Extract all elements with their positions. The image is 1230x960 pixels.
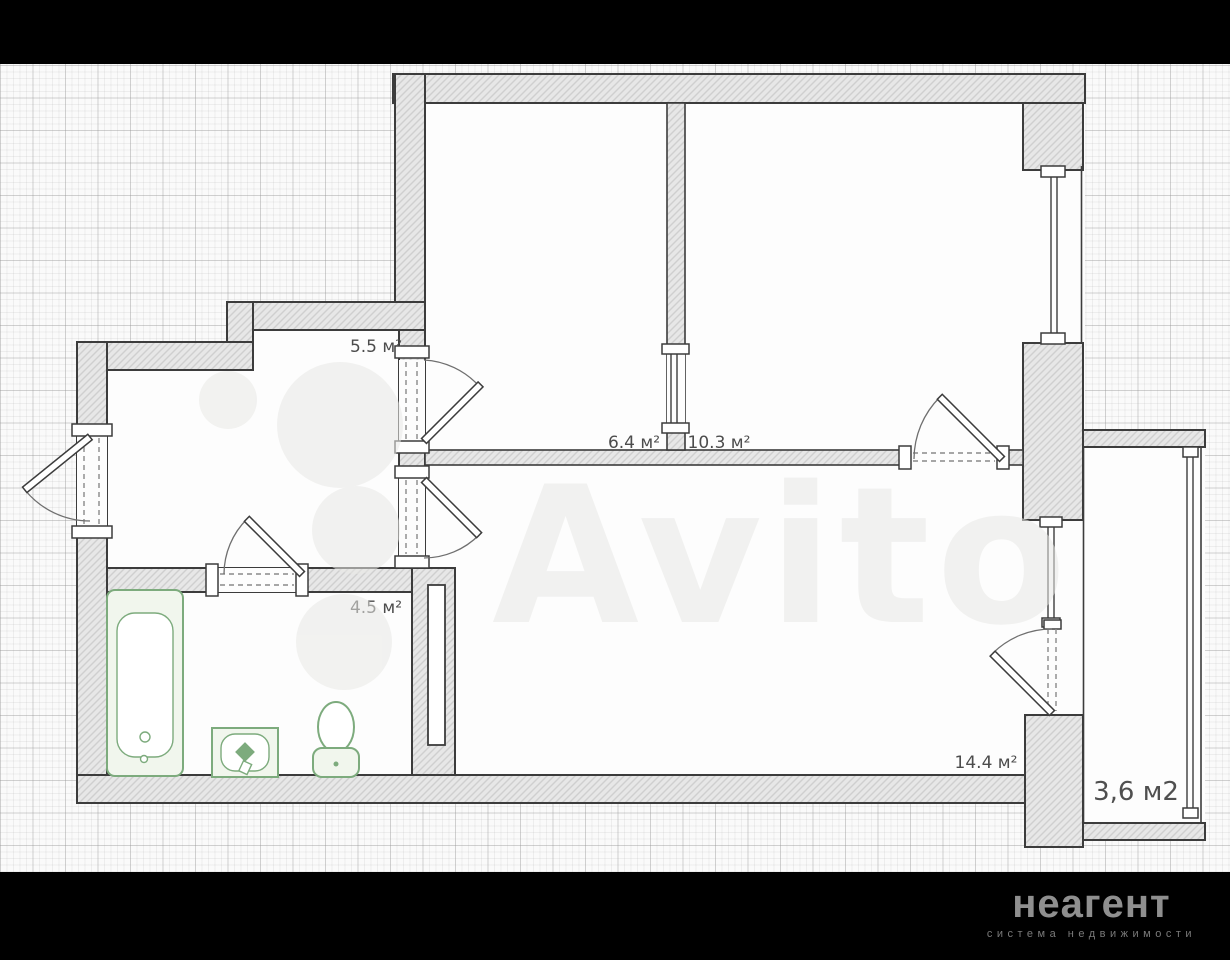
room-label-balcony: 3,6 м2: [1093, 777, 1179, 807]
watermark-dot: [199, 371, 257, 429]
toilet-button: [334, 762, 339, 767]
floor-plan-screenshot: 5.5 м² 6.4 м² 10.3 м² 4.5 м² 14.4 м² 3,6…: [0, 0, 1230, 960]
bathtub: [107, 590, 183, 776]
watermark-dot: [312, 486, 400, 574]
wall-hallway-top: [227, 302, 425, 330]
sink: [212, 728, 278, 777]
toilet: [313, 702, 359, 777]
door-jamb: [395, 466, 429, 478]
neagent-tagline: система недвижимости: [987, 928, 1196, 940]
door-jamb: [206, 564, 218, 596]
bathtub-drain: [140, 732, 150, 742]
window-cap: [662, 423, 689, 433]
watermark-text: Avito: [492, 446, 1073, 667]
ventilation-shaft-niche: [428, 585, 445, 745]
watermark-dot: [277, 362, 403, 488]
window-cap: [1183, 447, 1198, 457]
door-entrance: [23, 424, 112, 538]
room-label-living: 14.4 м²: [955, 753, 1018, 773]
wall-right-bottom-pier: [1025, 715, 1083, 847]
door-jamb: [395, 556, 429, 568]
bottom-letterbox-bar: неагент система недвижимости: [0, 872, 1230, 960]
top-letterbox-bar: [0, 0, 1230, 64]
window-cap: [1041, 166, 1065, 177]
door-jamb: [72, 526, 112, 538]
wall-top: [393, 74, 1085, 103]
door-jamb: [72, 424, 112, 436]
wall-room64-left: [395, 74, 425, 330]
neagent-logo: неагент: [987, 884, 1196, 924]
window-cap: [1041, 333, 1065, 344]
window-cap: [662, 344, 689, 354]
bathtub-drain: [141, 756, 148, 763]
wall-bottom: [77, 775, 1027, 803]
neagent-brand-block: неагент система недвижимости: [987, 884, 1196, 940]
apartment-floor-plan: 5.5 м² 6.4 м² 10.3 м² 4.5 м² 14.4 м² 3,6…: [0, 0, 1230, 960]
wall-left: [77, 342, 107, 803]
wall-right-top-pier: [1023, 103, 1083, 170]
window-cap: [1183, 808, 1198, 818]
watermark-dot: [296, 594, 392, 690]
wall-balcony-bottom: [1083, 823, 1205, 840]
room-label-hallway: 5.5 м²: [350, 337, 402, 357]
wall-balcony-top: [1083, 430, 1205, 447]
